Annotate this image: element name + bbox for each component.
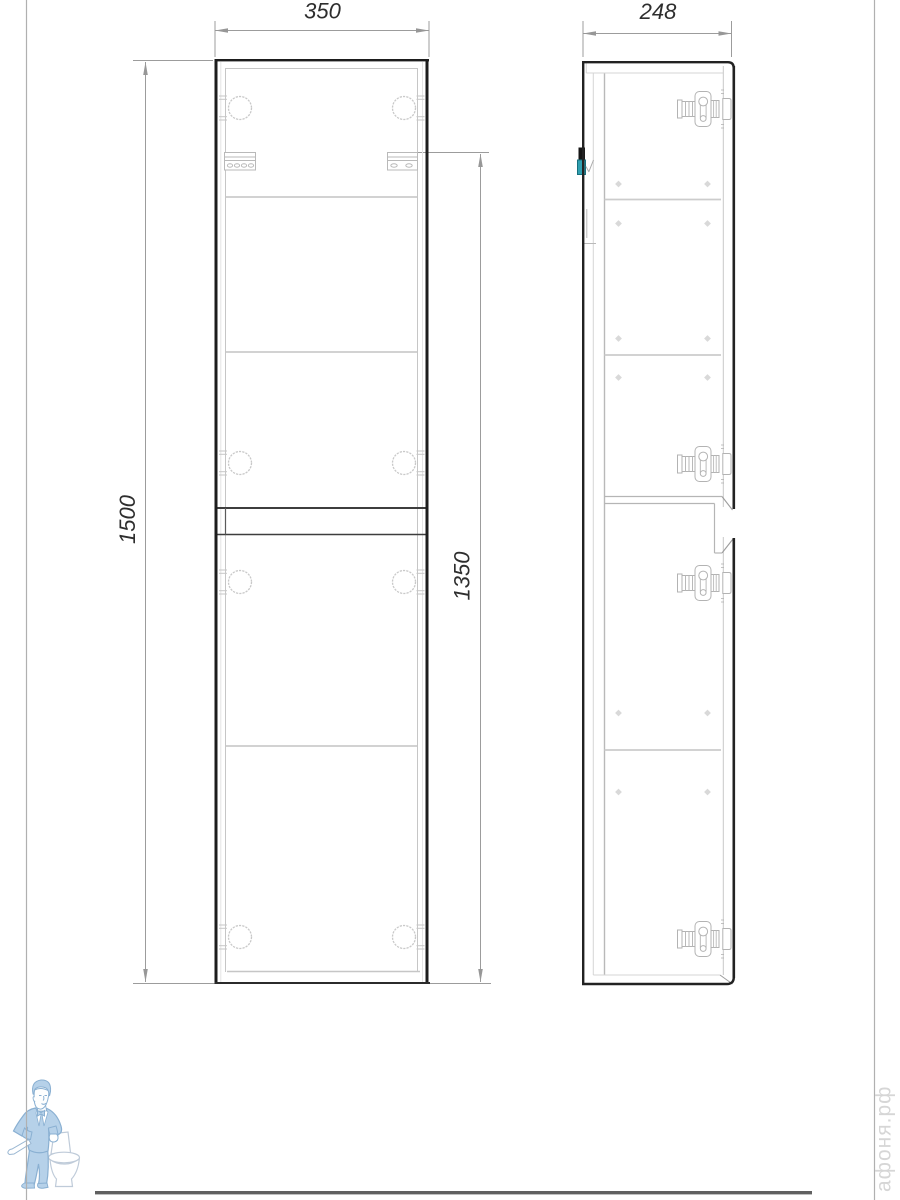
svg-text:248: 248 <box>639 0 677 24</box>
svg-text:1350: 1350 <box>450 551 475 601</box>
svg-text:1500: 1500 <box>115 494 140 544</box>
svg-text:350: 350 <box>304 0 341 24</box>
svg-text:афоня.рф: афоня.рф <box>873 1086 896 1192</box>
